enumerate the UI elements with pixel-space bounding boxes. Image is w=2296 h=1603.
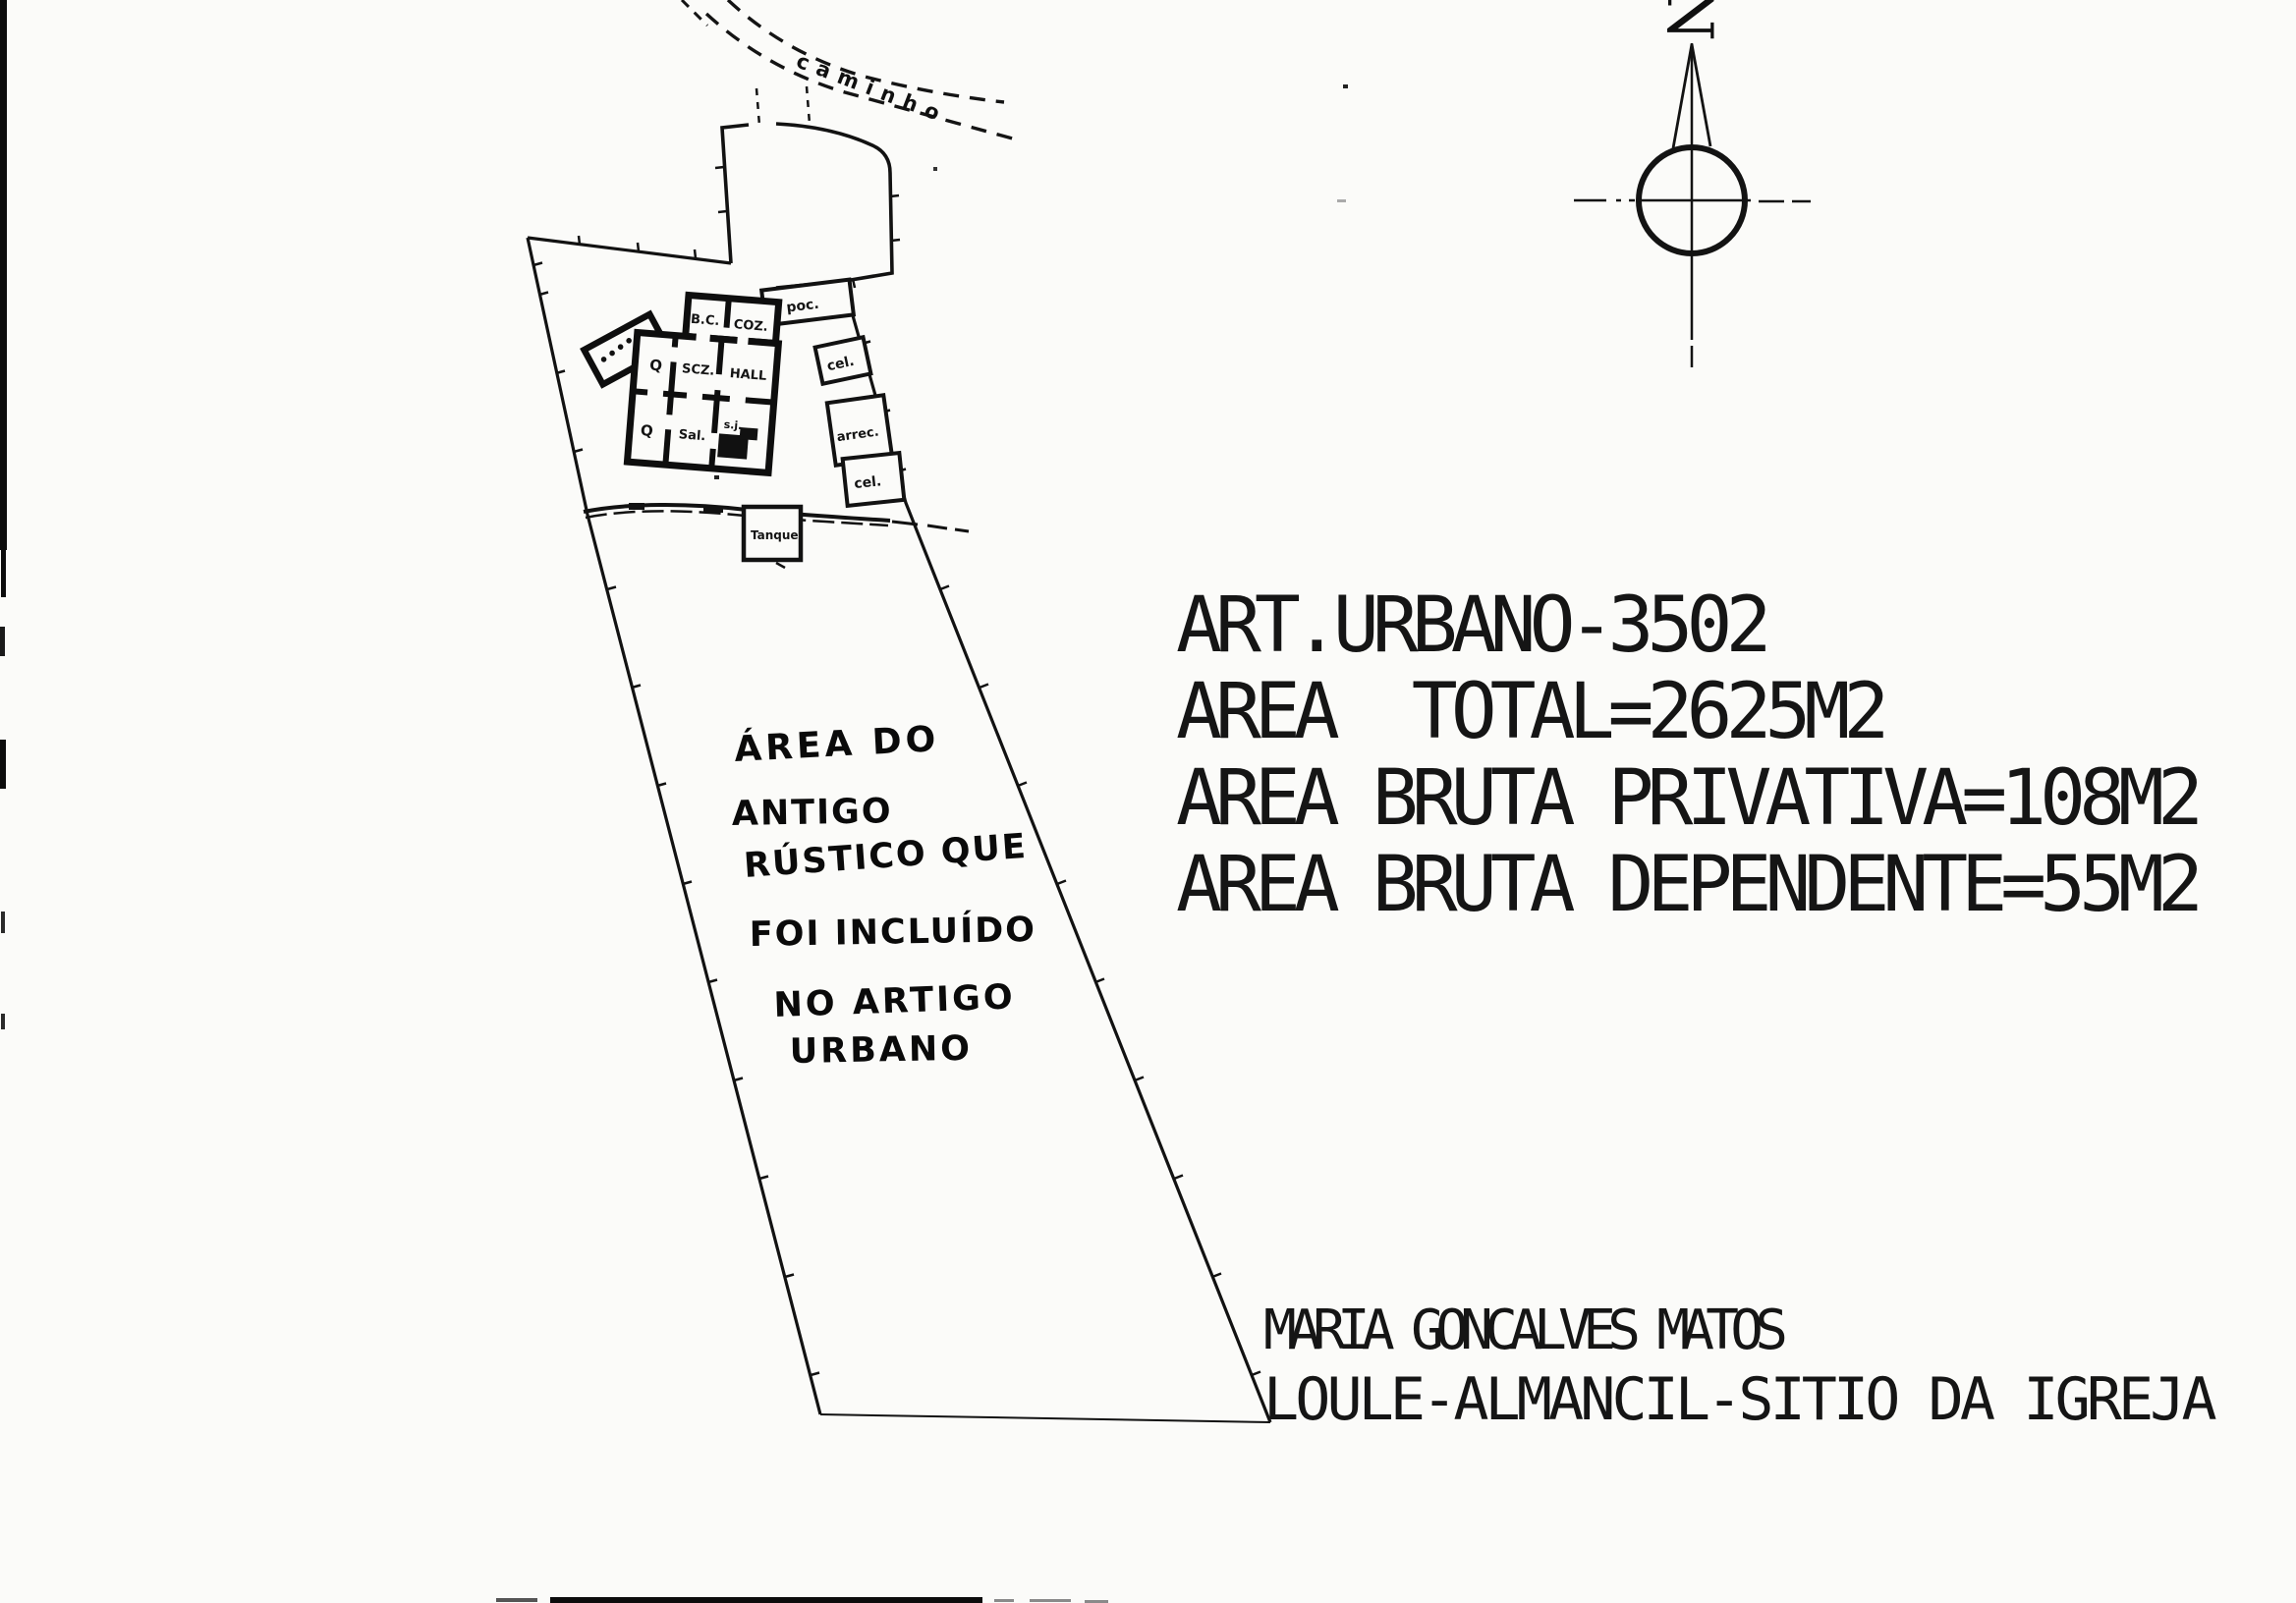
north-label: N xyxy=(1652,0,1725,41)
room-label-scz: SCZ. xyxy=(681,361,714,379)
gate-dashes xyxy=(756,86,810,126)
room-label-hall: HALL xyxy=(729,366,767,384)
tank-label: Tanque xyxy=(751,528,799,542)
handwritten-line-5: NO ARTIGO xyxy=(773,977,1016,1025)
owner-block: MARIA GONCALVES MATOS LOULE-ALMANCIL-SIT… xyxy=(1263,1299,2216,1434)
owner-location: LOULE-ALMANCIL-SITIO DA IGREJA xyxy=(1263,1365,2216,1434)
house-plan: B.C. COZ. Q SCZ. HALL Q Sal. s.j. xyxy=(576,287,782,472)
room-label-coz: COZ. xyxy=(733,317,768,335)
owner-name: MARIA GONCALVES MATOS xyxy=(1263,1299,1785,1362)
handwritten-note: ÁREA DO ANTIGO RÚSTICO QUE FOI INCLUÍDO … xyxy=(731,718,1036,1072)
wall-dashes-east xyxy=(892,522,969,531)
property-info-line-4: AREA BRUTA DEPENDENTE=55M2 xyxy=(1176,841,2198,929)
room-label-sj: s.j. xyxy=(723,418,743,432)
room-label-q2: Q xyxy=(640,421,653,440)
room-label-q1: Q xyxy=(649,357,663,375)
plan-drawing: caminho poc. cel. a xyxy=(0,0,2296,1603)
handwritten-line-2: ANTIGO xyxy=(731,792,892,834)
handwritten-line-6: URBANO xyxy=(789,1029,973,1072)
parcel-outline xyxy=(722,124,892,288)
tank: Tanque xyxy=(744,507,801,568)
room-label-bc: B.C. xyxy=(690,312,719,329)
property-info-block: ART.URBANO-3502 AREA TOTAL=2625M2 AREA B… xyxy=(1176,581,2198,929)
compass-horizontal-axis xyxy=(1574,200,1811,201)
property-info-line-1: ART.URBANO-3502 xyxy=(1176,581,1765,670)
property-info-line-2: AREA TOTAL=2625M2 xyxy=(1176,668,1883,756)
handwritten-line-3: RÚSTICO QUE xyxy=(743,825,1029,886)
property-info-line-3: AREA BRUTA PRIVATIVA=108M2 xyxy=(1176,754,2198,843)
handwritten-line-1: ÁREA DO xyxy=(733,718,940,770)
north-boundary xyxy=(528,238,731,263)
room-label-sal: Sal. xyxy=(678,427,706,444)
outbuilding-cel-2-label: cel. xyxy=(854,473,882,492)
scan-artifacts xyxy=(0,0,1348,1603)
scanned-property-plan: caminho poc. cel. a xyxy=(0,0,2296,1603)
south-boundary xyxy=(820,1414,1270,1422)
outbuildings: poc. cel. arrec. cel. xyxy=(761,280,904,506)
north-arrow: N xyxy=(1574,0,1811,367)
handwritten-line-4: FOI INCLUÍDO xyxy=(749,909,1036,955)
road-label: caminho xyxy=(793,49,951,129)
road-stub xyxy=(682,0,707,26)
